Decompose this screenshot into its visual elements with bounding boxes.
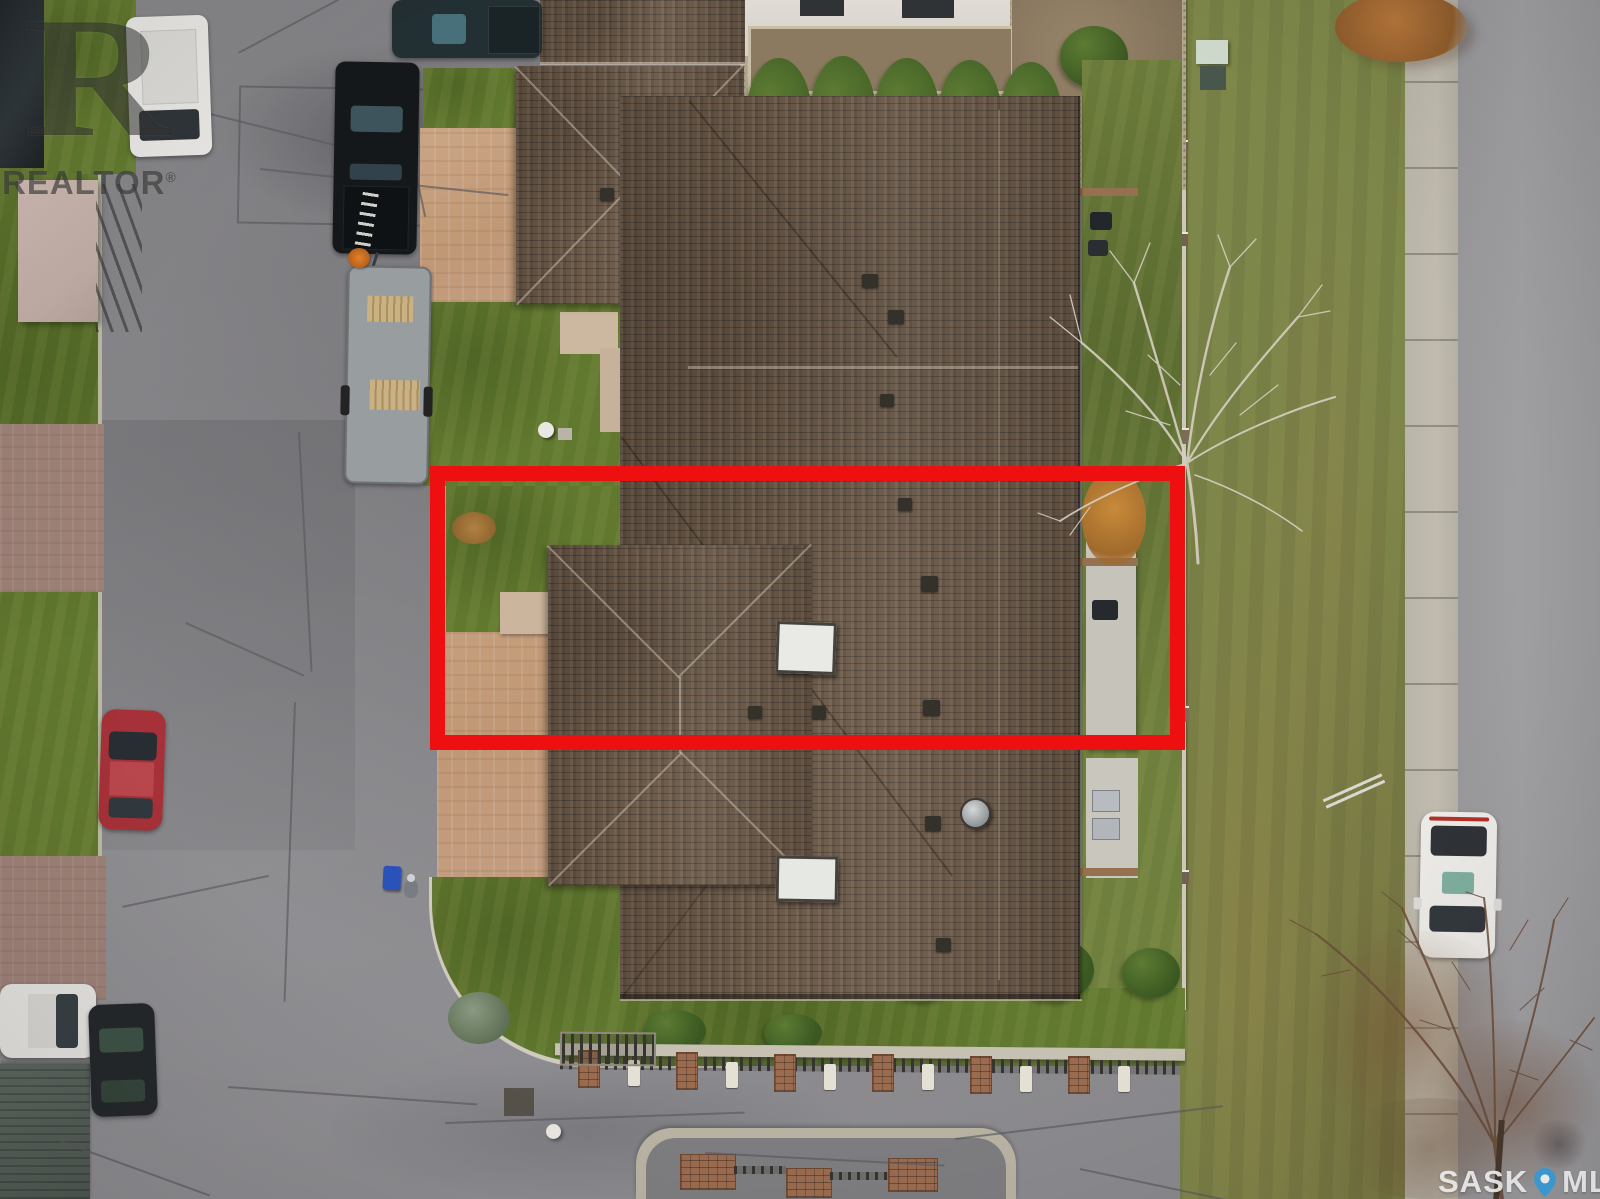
patio-pavers: [0, 856, 106, 1000]
car-windshield: [56, 994, 78, 1048]
person: [404, 880, 418, 898]
roof-vent: [888, 310, 904, 324]
dark-car: [88, 1003, 158, 1117]
roof-vent: [862, 274, 878, 288]
car-rear-glass: [1431, 826, 1488, 857]
highlight-outline: [430, 466, 1185, 750]
utility-box: [1196, 40, 1228, 64]
wall-post: [1020, 1066, 1032, 1092]
realtor-watermark: R REALTOR®: [0, 0, 230, 215]
location-pin-icon: [1534, 1168, 1556, 1197]
ac-unit: [1092, 818, 1120, 840]
black-pickup: [332, 61, 419, 254]
truck-rear-glass: [350, 164, 402, 181]
ac-unit: [1092, 790, 1120, 812]
autumn-tree: [1270, 890, 1600, 1199]
trailer-wheel: [423, 387, 433, 417]
island-railing: [734, 1166, 786, 1174]
realtor-logo-icon: R: [24, 0, 171, 164]
patio-fence: [1080, 868, 1138, 876]
brick-pillar: [872, 1054, 894, 1092]
skylight: [776, 855, 839, 902]
brick-pillar: [774, 1054, 796, 1092]
patio-fence: [1080, 188, 1138, 196]
car-roof: [109, 761, 154, 797]
window: [800, 0, 844, 16]
car-roof: [28, 994, 56, 1048]
car-taillight: [1429, 816, 1489, 821]
roof-vent: [925, 816, 941, 831]
realtor-label-text: REALTOR: [2, 164, 165, 201]
truck-cab-glass: [432, 14, 466, 44]
saskmls-watermark: SASK MLS®: [1438, 1164, 1600, 1199]
utility-trailer: [344, 265, 432, 484]
patio-pavers: [0, 424, 104, 592]
unit-divide-gutter: [688, 366, 1078, 369]
brick-pillar: [676, 1052, 698, 1090]
car-windshield: [108, 731, 157, 761]
wall-post: [824, 1064, 836, 1090]
island-railing: [830, 1172, 888, 1180]
brick-pillar: [970, 1056, 992, 1094]
eaves: [540, 62, 745, 65]
teal-pickup: [392, 0, 542, 58]
brick-pillar: [1068, 1056, 1090, 1094]
car-windshield: [99, 1027, 144, 1053]
saskmls-left-text: SASK: [1438, 1164, 1528, 1199]
roof-vent: [600, 188, 614, 201]
red-car: [98, 709, 166, 831]
worker: [348, 248, 370, 268]
spruce-shrub: [448, 992, 510, 1044]
eaves: [620, 999, 1082, 1001]
utility-box: [1200, 66, 1226, 90]
registered-symbol: ®: [165, 169, 176, 185]
garbage-bin: [382, 866, 401, 891]
roof-top-strip: [540, 0, 745, 64]
satellite-dish: [538, 422, 554, 438]
realtor-label: REALTOR®: [2, 164, 177, 202]
truck-bed: [488, 6, 540, 54]
person-head: [407, 874, 415, 882]
pallet: [367, 296, 413, 323]
brick-planter: [786, 1168, 832, 1198]
white-car: [0, 984, 96, 1058]
small-roof: [0, 1064, 90, 1199]
car-rear-glass: [101, 1079, 146, 1103]
brick-planter: [680, 1154, 736, 1190]
window: [902, 0, 954, 18]
pallet: [369, 380, 420, 411]
lamp-ball: [546, 1124, 561, 1139]
bush: [1122, 948, 1180, 998]
wall-post: [726, 1062, 738, 1088]
roof-vent: [880, 394, 894, 407]
utility-pad: [504, 1088, 534, 1116]
saskmls-right-text: MLS: [1562, 1164, 1600, 1199]
car-rear-glass: [108, 797, 153, 819]
wall-post: [1118, 1066, 1130, 1092]
utility-pad: [558, 428, 572, 440]
wall-post: [922, 1064, 934, 1090]
steps-grate: [560, 1032, 656, 1067]
aerial-property-photo: R REALTOR® SASK MLS®: [0, 0, 1600, 1199]
trailer-wheel: [340, 385, 350, 415]
round-vent: [960, 798, 991, 829]
truck-windshield: [350, 106, 402, 133]
roof-vent: [936, 938, 951, 952]
